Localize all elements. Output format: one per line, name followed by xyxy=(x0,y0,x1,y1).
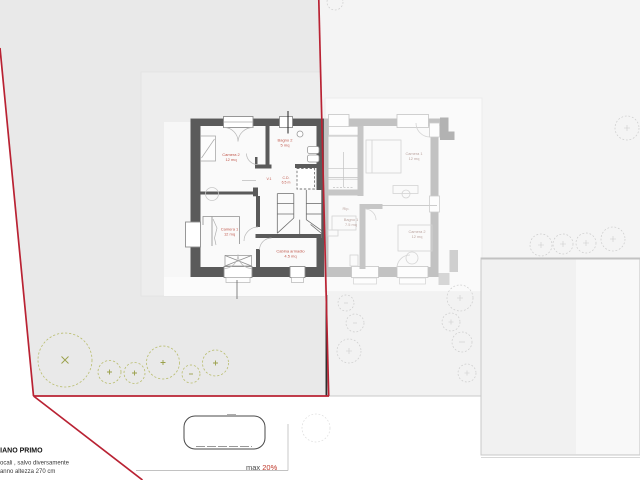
svg-text:max 20%: max 20% xyxy=(246,463,278,472)
svg-text:6.5 m: 6.5 m xyxy=(282,181,291,185)
svg-text:Rip.: Rip. xyxy=(343,206,350,211)
svg-text:4.5 mq: 4.5 mq xyxy=(284,254,296,259)
svg-text:12 mq: 12 mq xyxy=(225,157,236,162)
svg-text:12 mq: 12 mq xyxy=(409,156,420,161)
svg-text:V.1: V.1 xyxy=(267,177,272,181)
svg-text:5 mq: 5 mq xyxy=(281,143,290,148)
svg-text:C.D.: C.D. xyxy=(283,176,290,180)
svg-text:hanno altezza 270 cm: hanno altezza 270 cm xyxy=(0,469,55,475)
svg-text:12 mq: 12 mq xyxy=(224,232,235,237)
svg-text:7.5 mq: 7.5 mq xyxy=(345,222,357,227)
svg-text:PIANO PRIMO: PIANO PRIMO xyxy=(0,448,43,455)
svg-text:I locali , salvo diversamente: I locali , salvo diversamente xyxy=(0,461,70,467)
svg-text:12 mq: 12 mq xyxy=(412,234,423,239)
